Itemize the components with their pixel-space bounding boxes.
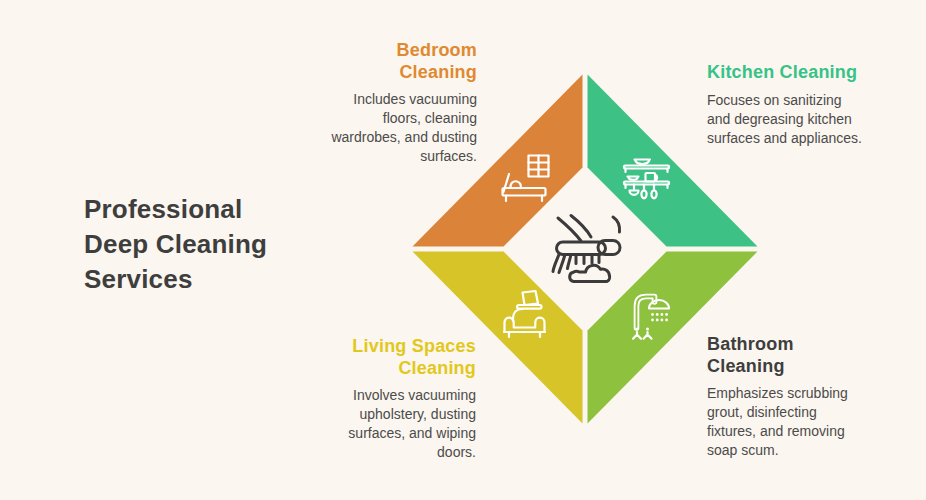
service-block-kitchen: Kitchen Cleaning Focuses on sanitizing a… [707,62,877,148]
service-description-bathroom: Emphasizes scrubbing grout, disinfecting… [707,384,867,460]
service-block-bathroom: Bathroom Cleaning Emphasizes scrubbing g… [707,334,877,460]
service-heading-bedroom: Bedroom Cleaning [357,40,477,83]
service-block-living: Living Spaces Cleaning Involves vacuumin… [276,336,476,462]
cleaning-brush-icon [553,216,620,282]
service-description-bedroom: Includes vacuuming floors, cleaning ward… [315,90,477,166]
service-block-bedroom: Bedroom Cleaning Includes vacuuming floo… [277,40,477,166]
infographic-canvas: Professional Deep Cleaning Services [0,0,926,500]
service-heading-living: Living Spaces Cleaning [344,336,476,379]
service-description-living: Involves vacuuming upholstery, dusting s… [316,386,476,462]
service-description-kitchen: Focuses on sanitizing and degreasing kit… [707,91,865,148]
service-heading-bathroom: Bathroom Cleaning [707,334,822,377]
service-heading-kitchen: Kitchen Cleaning [707,62,877,84]
